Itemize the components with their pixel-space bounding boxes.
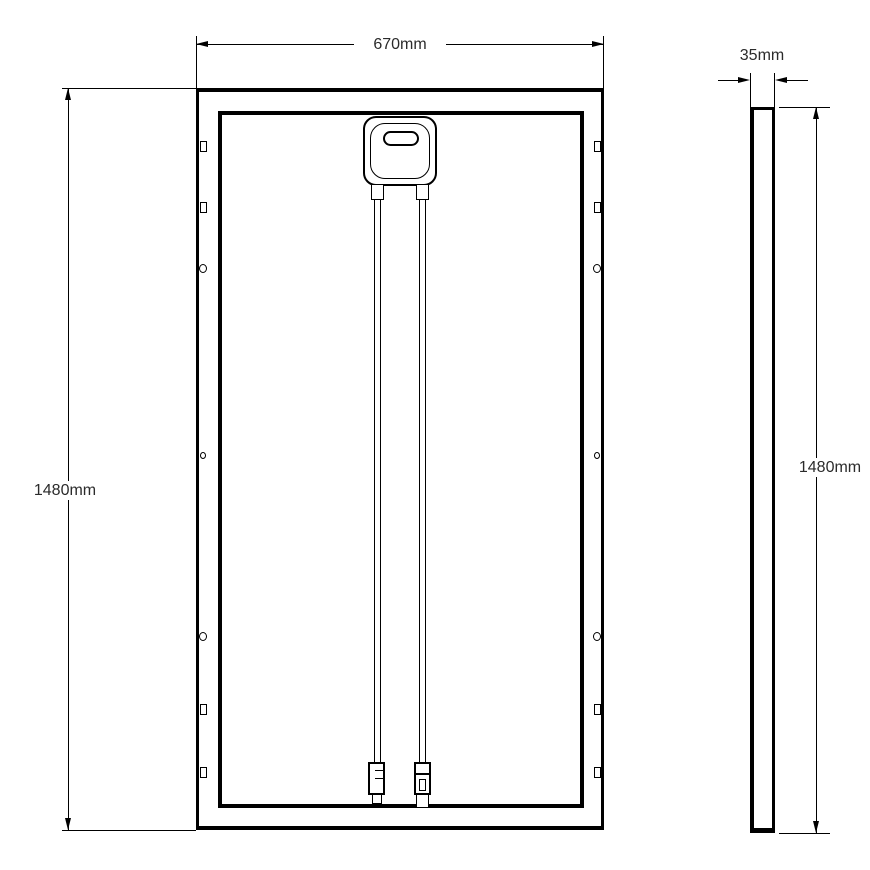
connector-latch [419, 779, 426, 791]
dimension-tail-line [718, 80, 739, 81]
connector-tip [416, 794, 429, 808]
panel-glass-area [218, 111, 584, 808]
drain-hole [594, 452, 600, 459]
mounting-slot [200, 202, 207, 213]
arrowhead-up-icon [65, 88, 71, 100]
cable-gland [371, 184, 384, 200]
dimension-line [68, 88, 69, 830]
mounting-hole [593, 264, 601, 273]
cable-positive [419, 200, 426, 762]
connector-seam-line [414, 773, 431, 775]
mounting-slot [200, 141, 207, 152]
extension-line [750, 73, 751, 107]
arrowhead-down-icon [65, 818, 71, 830]
thickness-dimension-label: 35mm [722, 46, 802, 65]
mounting-slot [200, 767, 207, 778]
mounting-slot [594, 767, 601, 778]
arrowhead-left-icon [196, 41, 208, 47]
mounting-hole [199, 264, 207, 273]
arrowhead-left-icon [775, 77, 787, 83]
panel-side-profile [750, 107, 775, 833]
extension-line [779, 107, 830, 108]
extension-line [779, 833, 830, 834]
arrowhead-up-icon [813, 107, 819, 119]
connector-clip [375, 770, 384, 779]
mounting-hole [199, 632, 207, 641]
junction-box-handle [383, 131, 419, 146]
cable-negative [374, 200, 381, 762]
width-dimension-label: 670mm [354, 35, 446, 54]
front-height-dimension-label: 1480mm [18, 481, 112, 500]
technical-drawing-canvas: 670mm 1480mm [0, 0, 870, 870]
cable-gland [416, 184, 429, 200]
mounting-slot [594, 704, 601, 715]
drain-hole [200, 452, 206, 459]
arrowhead-right-icon [592, 41, 604, 47]
mounting-slot [200, 704, 207, 715]
extension-line [62, 830, 196, 831]
dimension-tail-line [787, 80, 808, 81]
arrowhead-right-icon [738, 77, 750, 83]
mounting-slot [594, 141, 601, 152]
extension-line [62, 88, 196, 89]
mounting-hole [593, 632, 601, 641]
side-height-dimension-label: 1480mm [783, 458, 870, 477]
connector-tip [372, 794, 382, 804]
arrowhead-down-icon [813, 821, 819, 833]
mounting-slot [594, 202, 601, 213]
